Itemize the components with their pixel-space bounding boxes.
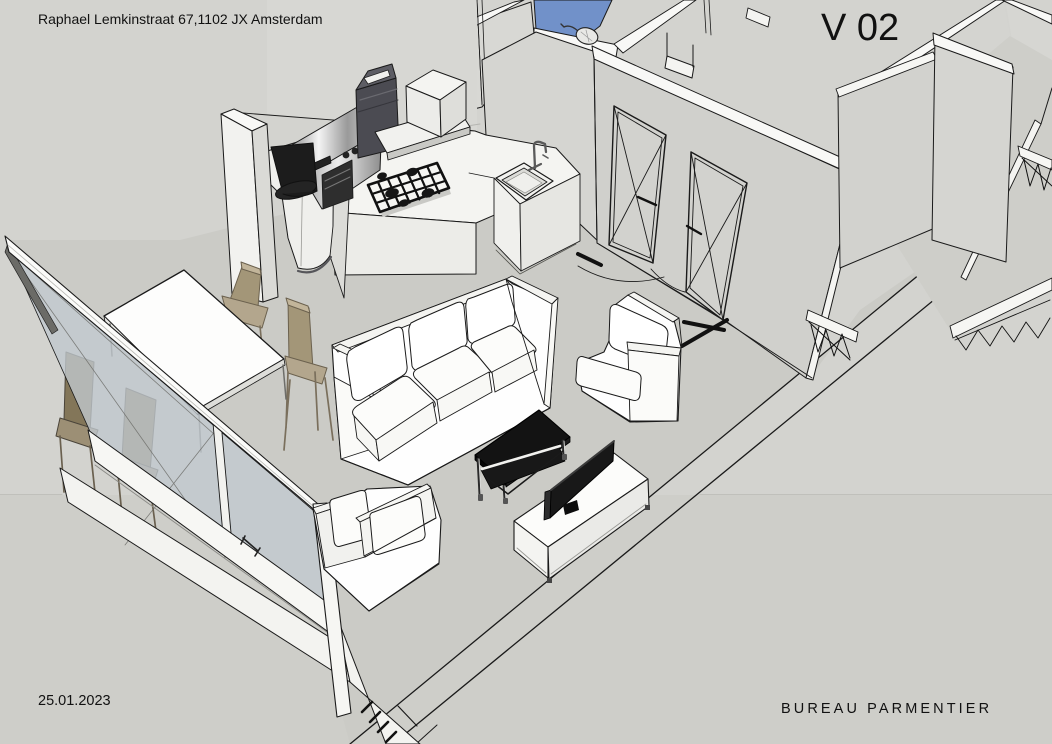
svg-text:Raphael Lemkinstraat 67,1102 J: Raphael Lemkinstraat 67,1102 JX Amsterda… (38, 11, 323, 27)
svg-text:BUREAU PARMENTIER: BUREAU PARMENTIER (781, 701, 992, 717)
svg-text:V 02: V 02 (821, 7, 899, 49)
svg-text:25.01.2023: 25.01.2023 (38, 693, 111, 709)
